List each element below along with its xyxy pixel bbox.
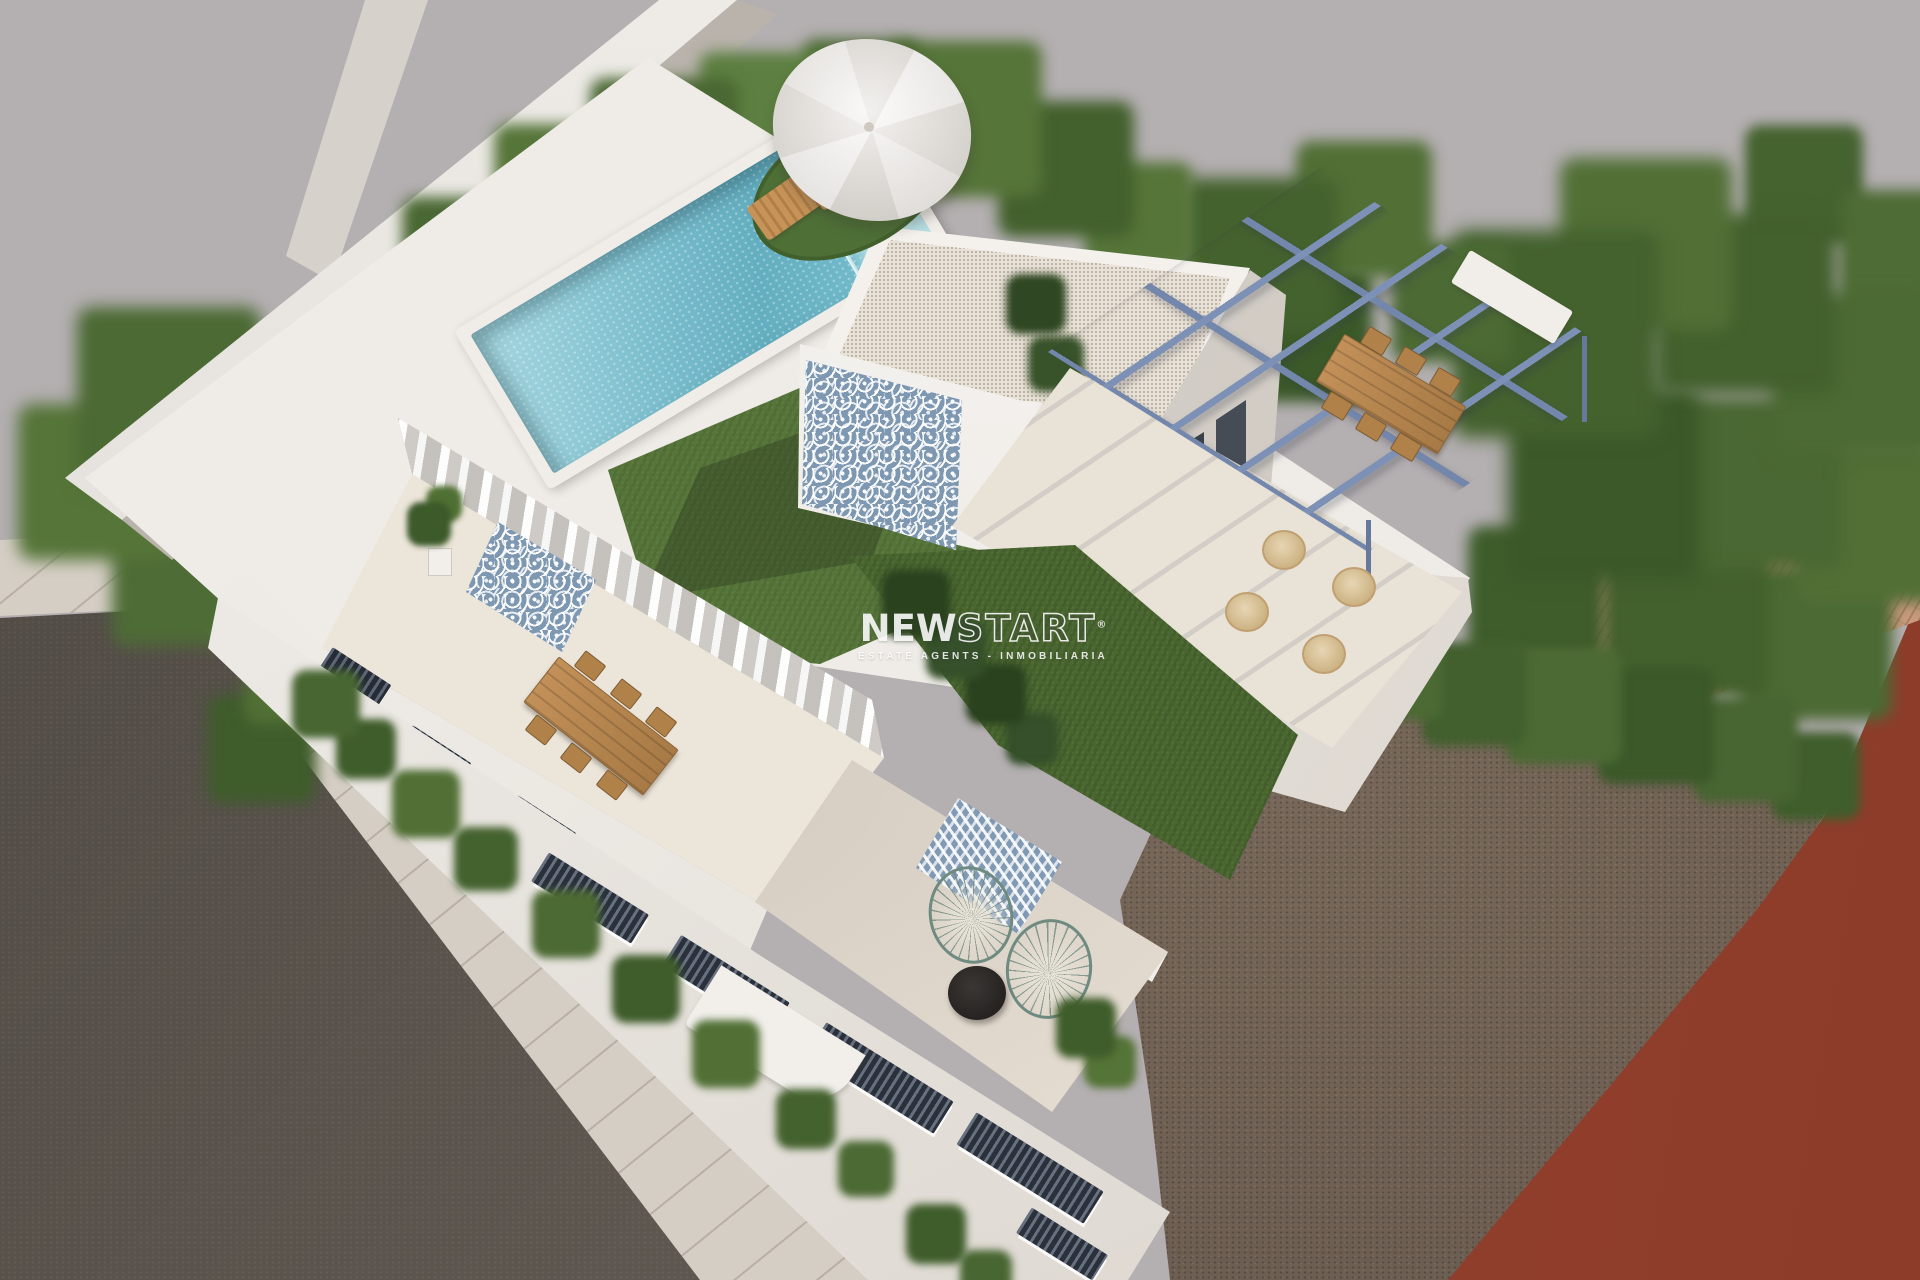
bushes-along-sidewalk [0, 0, 8, 8]
potted-plant-pot [428, 548, 452, 576]
watermark: NEWSTART® ESTATE AGENTS - INMOBILIARIA [858, 610, 1108, 662]
watermark-brand-outline: START [957, 607, 1097, 650]
watermark-brand: NEWSTART® [858, 610, 1108, 647]
watermark-tagline: ESTATE AGENTS - INMOBILIARIA [858, 651, 1108, 662]
registered-trademark-icon: ® [1096, 620, 1106, 631]
wicker-chair [1332, 567, 1376, 607]
black-round-table [948, 966, 1006, 1020]
wicker-chair [1302, 634, 1346, 674]
parasol-hub [864, 122, 874, 132]
render-scene: NEWSTART® ESTATE AGENTS - INMOBILIARIA [0, 0, 1920, 1280]
pergola-post [1582, 336, 1587, 422]
wicker-chair [1225, 592, 1269, 632]
wicker-chair [1262, 530, 1306, 570]
watermark-brand-solid: NEW [860, 607, 957, 650]
tagline-text: ESTATE AGENTS - INMOBILIARIA [858, 651, 1108, 662]
